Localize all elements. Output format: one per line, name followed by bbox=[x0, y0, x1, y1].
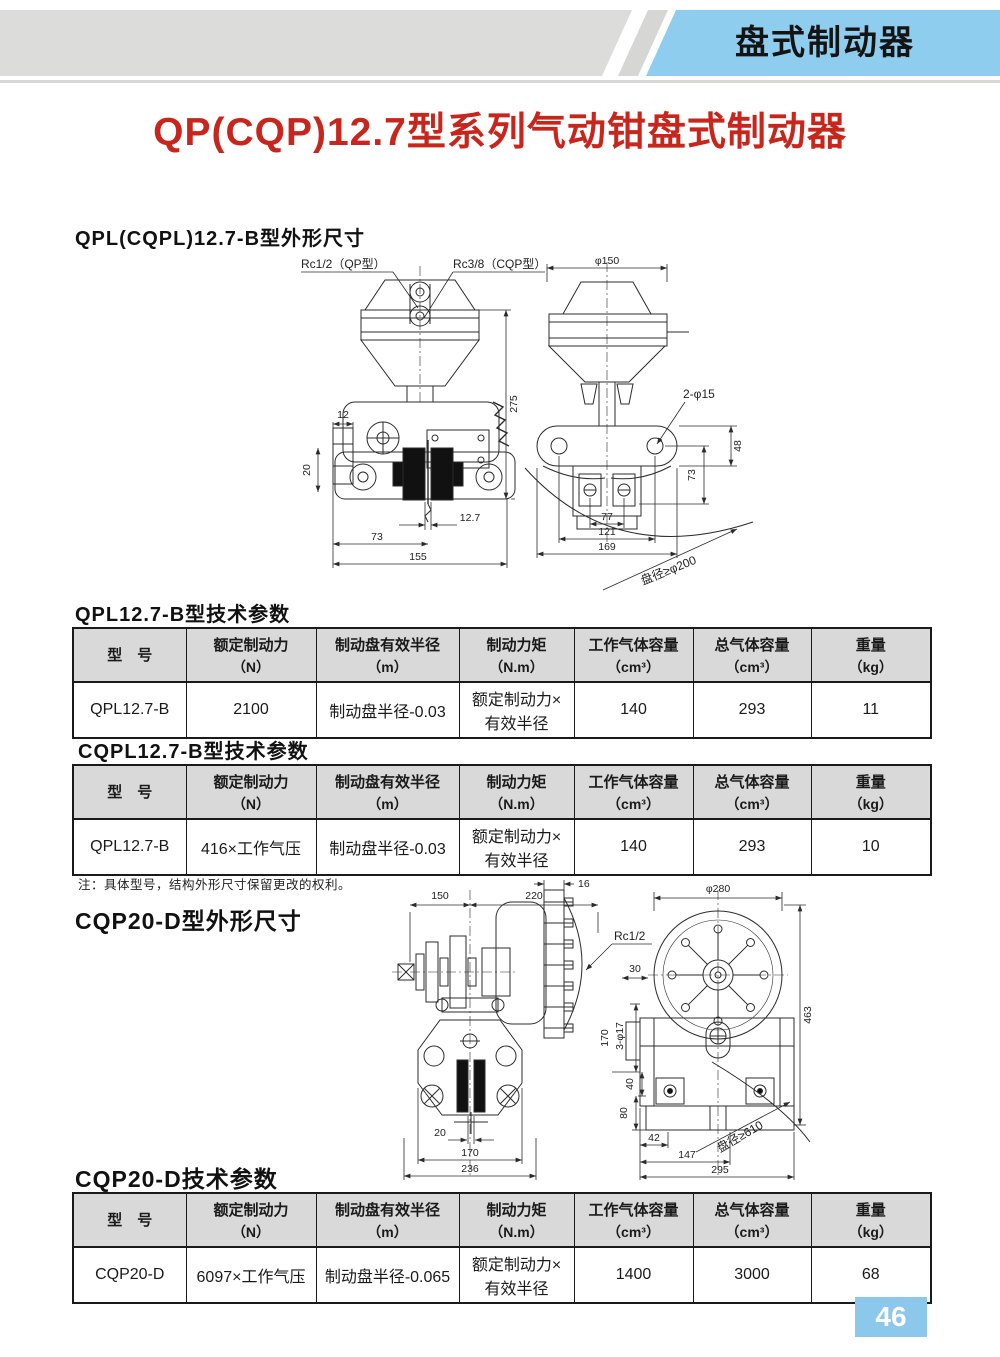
col-model: 型 号 bbox=[73, 628, 186, 682]
table2-header-row: 型 号 额定制动力（N） 制动盘有效半径（m） 制动力矩（N.m） 工作气体容量… bbox=[73, 765, 931, 819]
dim-12-7: 12.7 bbox=[460, 512, 481, 524]
cell-working-volume: 1400 bbox=[574, 1247, 693, 1303]
col-weight: 重量（kg） bbox=[811, 765, 931, 819]
dim-20: 20 bbox=[434, 1127, 446, 1139]
cell-disc-radius: 制动盘半径-0.03 bbox=[316, 819, 459, 875]
col-model: 型 号 bbox=[73, 1193, 186, 1247]
dim-30: 30 bbox=[629, 963, 641, 975]
cell-working-volume: 140 bbox=[574, 819, 693, 875]
cell-working-volume: 140 bbox=[574, 682, 693, 738]
cell-rated-force: 6097×工作气压 bbox=[186, 1247, 316, 1303]
dim-40: 40 bbox=[624, 1078, 636, 1090]
cell-weight: 10 bbox=[811, 819, 931, 875]
table1-data-row: QPL12.7-B 2100 制动盘半径-0.03 额定制动力× 有效半径 14… bbox=[73, 682, 931, 738]
heading-drawing1: QPL(CQPL)12.7-B型外形尺寸 bbox=[75, 222, 365, 251]
dim-phi150: φ150 bbox=[595, 255, 619, 267]
cell-rated-force: 2100 bbox=[186, 682, 316, 738]
col-weight: 重量（kg） bbox=[811, 1193, 931, 1247]
col-rated-force: 额定制动力（N） bbox=[186, 765, 316, 819]
dim-275: 275 bbox=[508, 395, 520, 413]
col-torque: 制动力矩（N.m） bbox=[459, 1193, 574, 1247]
cell-model: QPL12.7-B bbox=[73, 682, 186, 738]
col-disc-radius: 制动盘有效半径（m） bbox=[316, 765, 459, 819]
dim-42: 42 bbox=[648, 1132, 660, 1144]
dim-48: 48 bbox=[732, 440, 744, 452]
dim-463: 463 bbox=[802, 1006, 814, 1024]
page-number-badge: 46 bbox=[855, 1297, 927, 1337]
table1-header-row: 型 号 额定制动力（N） 制动盘有效半径（m） 制动力矩（N.m） 工作气体容量… bbox=[73, 628, 931, 682]
cell-torque: 额定制动力× 有效半径 bbox=[459, 682, 574, 738]
cell-weight: 11 bbox=[811, 682, 931, 738]
cell-weight: 68 bbox=[811, 1247, 931, 1303]
page-title: QP(CQP)12.7型系列气动钳盘式制动器 bbox=[0, 101, 1000, 157]
heading-table2: CQPL12.7-B型技术参数 bbox=[78, 735, 309, 764]
qpl-right-dims bbox=[525, 264, 753, 590]
dim-16: 16 bbox=[578, 878, 590, 890]
col-rated-force: 额定制动力（N） bbox=[186, 628, 316, 682]
col-total-volume: 总气体容量（cm³） bbox=[693, 1193, 811, 1247]
col-torque: 制动力矩（N.m） bbox=[459, 628, 574, 682]
dim-170r: 170 bbox=[599, 1029, 611, 1047]
dim-73r: 73 bbox=[686, 469, 698, 481]
col-torque: 制动力矩（N.m） bbox=[459, 765, 574, 819]
cell-model: QPL12.7-B bbox=[73, 819, 186, 875]
drawing-cqp20d: 150 220 16 Rc1/2 20 170 236 φ280 30 3-φ1… bbox=[390, 878, 840, 1183]
dim-77: 77 bbox=[601, 511, 613, 523]
dim-155: 155 bbox=[409, 551, 427, 563]
cell-total-volume: 293 bbox=[693, 819, 811, 875]
col-model: 型 号 bbox=[73, 765, 186, 819]
heading-drawing2: CQP20-D型外形尺寸 bbox=[75, 902, 302, 936]
dim-phi280: φ280 bbox=[706, 883, 730, 895]
col-disc-radius: 制动盘有效半径（m） bbox=[316, 628, 459, 682]
col-working-volume: 工作气体容量（cm³） bbox=[574, 765, 693, 819]
dim-disc-610: 盘径≥610 bbox=[714, 1117, 766, 1155]
cell-torque: 额定制动力× 有效半径 bbox=[459, 819, 574, 875]
cell-total-volume: 3000 bbox=[693, 1247, 811, 1303]
dim-150: 150 bbox=[431, 890, 449, 902]
heading-table3: CQP20-D技术参数 bbox=[75, 1160, 278, 1194]
col-working-volume: 工作气体容量（cm³） bbox=[574, 628, 693, 682]
table-cqpl127b: 型 号 额定制动力（N） 制动盘有效半径（m） 制动力矩（N.m） 工作气体容量… bbox=[72, 764, 932, 876]
cqp-left-view bbox=[392, 890, 582, 1178]
col-working-volume: 工作气体容量（cm³） bbox=[574, 1193, 693, 1247]
dim-121: 121 bbox=[598, 526, 616, 538]
cell-disc-radius: 制动盘半径-0.065 bbox=[316, 1247, 459, 1303]
footnote: 注：具体型号，结构外形尺寸保留更改的权利。 bbox=[78, 874, 351, 893]
drawing-qpl127b: Rc1/2（QP型） Rc3/8（CQP型） 275 12 20 12.7 73… bbox=[285, 252, 775, 602]
cqp-dim-texts: 150 220 16 Rc1/2 20 170 236 φ280 30 3-φ1… bbox=[431, 878, 814, 1176]
cell-rated-force: 416×工作气压 bbox=[186, 819, 316, 875]
col-disc-radius: 制动盘有效半径（m） bbox=[316, 1193, 459, 1247]
header-divider-line bbox=[0, 80, 1000, 83]
dim-2-phi15: 2-φ15 bbox=[683, 387, 715, 401]
dim-port-cqp: Rc3/8（CQP型） bbox=[453, 257, 546, 271]
dim-rc12: Rc1/2 bbox=[614, 929, 646, 943]
catalog-page: { "header": { "tab_label": "盘式制动器" }, "t… bbox=[0, 0, 1000, 1357]
dim-295: 295 bbox=[711, 1164, 729, 1176]
col-total-volume: 总气体容量（cm³） bbox=[693, 765, 811, 819]
cell-model: CQP20-D bbox=[73, 1247, 186, 1303]
table3-data-row: CQP20-D 6097×工作气压 制动盘半径-0.065 额定制动力× 有效半… bbox=[73, 1247, 931, 1303]
dim-147: 147 bbox=[678, 1149, 696, 1161]
table2-data-row: QPL12.7-B 416×工作气压 制动盘半径-0.03 额定制动力× 有效半… bbox=[73, 819, 931, 875]
dim-port-qp: Rc1/2（QP型） bbox=[301, 257, 386, 271]
qpl-left-view bbox=[333, 266, 515, 522]
dim-220: 220 bbox=[525, 890, 543, 902]
cell-disc-radius: 制动盘半径-0.03 bbox=[316, 682, 459, 738]
header-tab-label: 盘式制动器 bbox=[660, 10, 990, 76]
table-cqp20d: 型 号 额定制动力（N） 制动盘有效半径（m） 制动力矩（N.m） 工作气体容量… bbox=[72, 1192, 932, 1304]
table-qpl127b: 型 号 额定制动力（N） 制动盘有效半径（m） 制动力矩（N.m） 工作气体容量… bbox=[72, 627, 932, 739]
dim-236: 236 bbox=[461, 1163, 479, 1175]
dim-80: 80 bbox=[618, 1107, 630, 1119]
qpl-dim-texts: Rc1/2（QP型） Rc3/8（CQP型） 275 12 20 12.7 73… bbox=[301, 255, 744, 588]
dim-169: 169 bbox=[598, 541, 616, 553]
col-weight: 重量（kg） bbox=[811, 628, 931, 682]
table3-header-row: 型 号 额定制动力（N） 制动盘有效半径（m） 制动力矩（N.m） 工作气体容量… bbox=[73, 1193, 931, 1247]
dim-3-phi17: 3-φ17 bbox=[614, 1022, 626, 1050]
dim-12: 12 bbox=[337, 409, 349, 421]
col-rated-force: 额定制动力（N） bbox=[186, 1193, 316, 1247]
dim-170: 170 bbox=[461, 1147, 479, 1159]
cell-torque: 额定制动力× 有效半径 bbox=[459, 1247, 574, 1303]
col-total-volume: 总气体容量（cm³） bbox=[693, 628, 811, 682]
dim-20: 20 bbox=[301, 464, 313, 476]
dim-73: 73 bbox=[371, 531, 383, 543]
cell-total-volume: 293 bbox=[693, 682, 811, 738]
heading-table1: QPL12.7-B型技术参数 bbox=[75, 598, 290, 627]
